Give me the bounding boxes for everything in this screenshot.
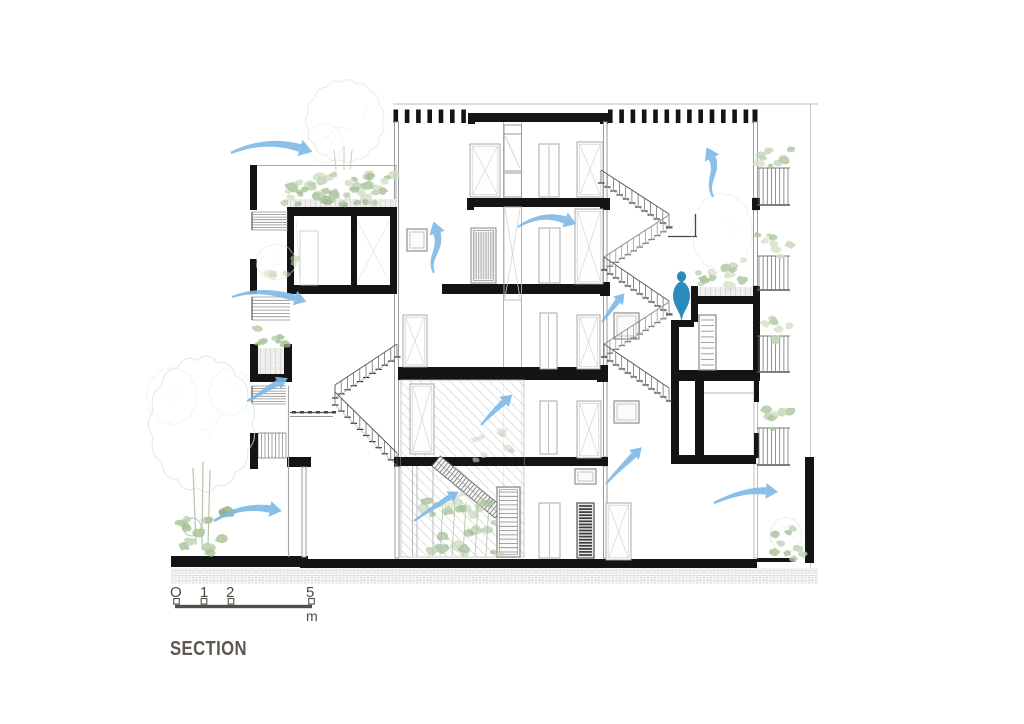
- svg-text:SECTION: SECTION: [170, 637, 247, 660]
- svg-text:m: m: [306, 608, 318, 624]
